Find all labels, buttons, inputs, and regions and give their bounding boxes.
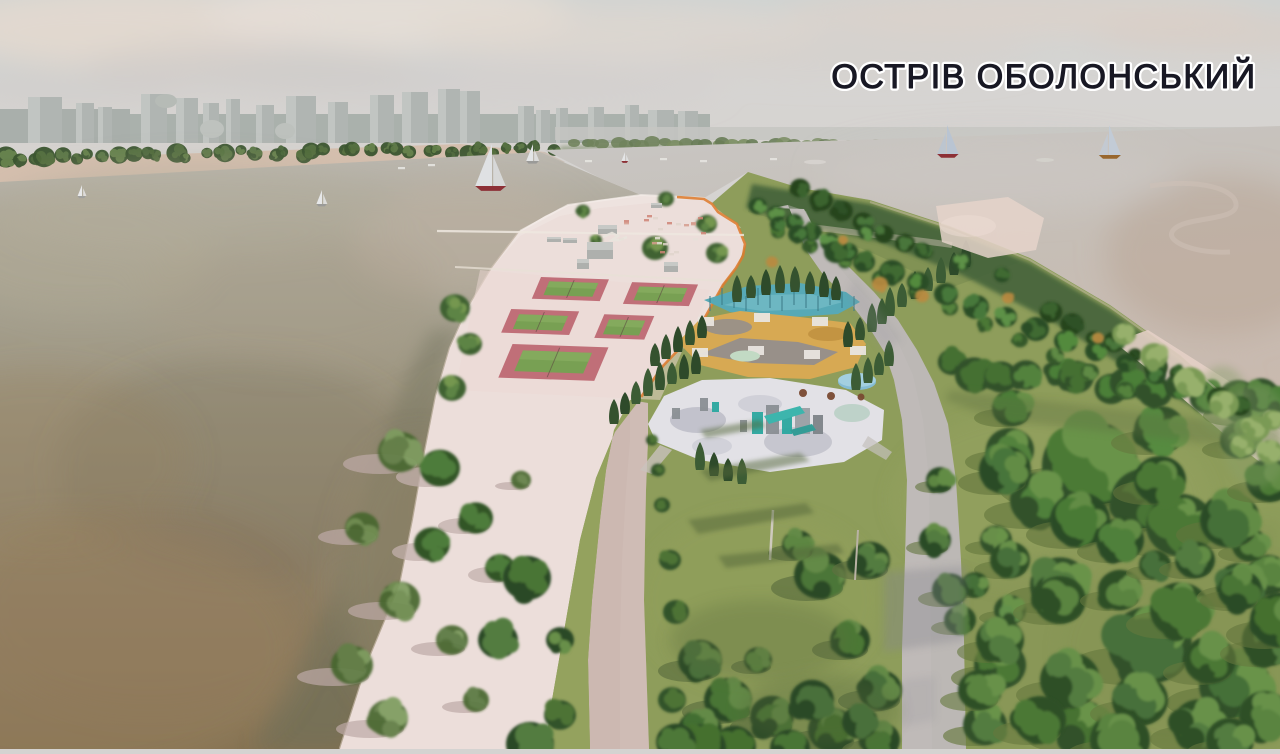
svg-text:ОСТРІВ ОБОЛОНСЬКИЙ: ОСТРІВ ОБОЛОНСЬКИЙ: [831, 58, 1256, 96]
